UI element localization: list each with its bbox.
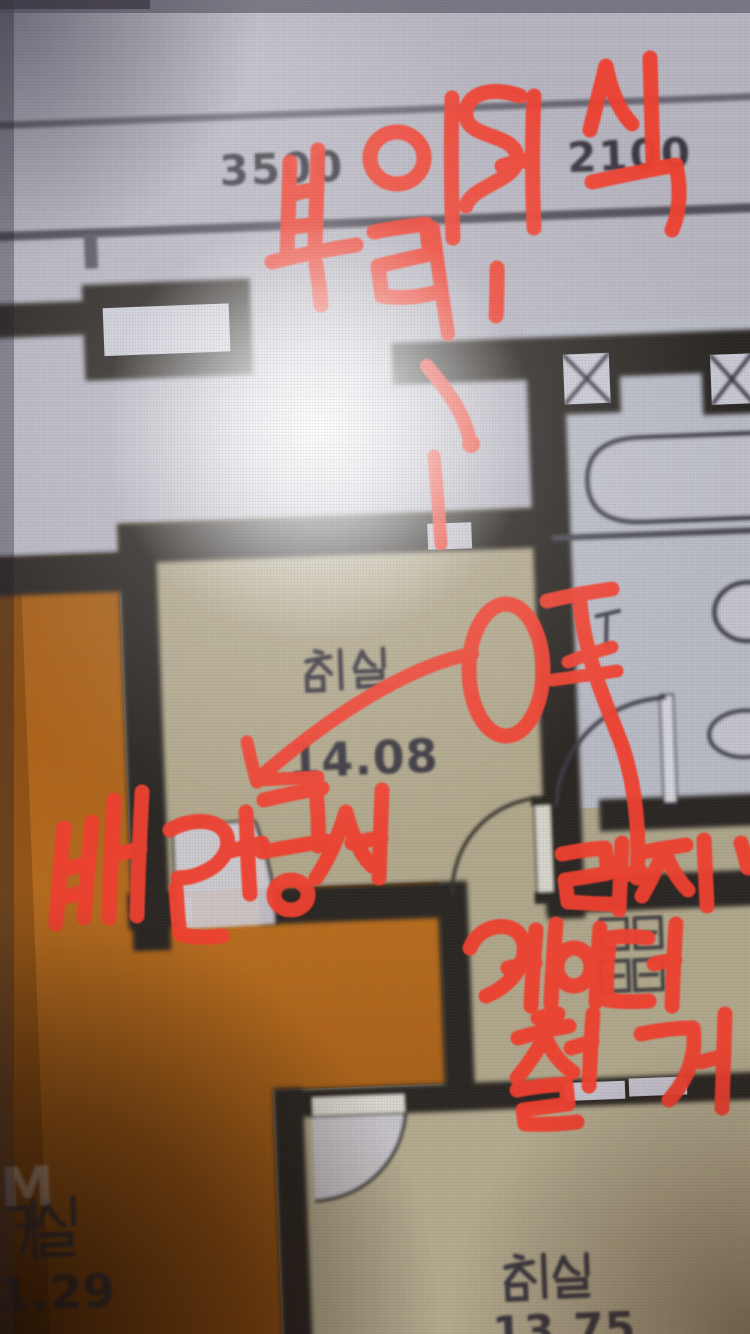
top-edge-band-left: [0, 0, 150, 9]
left-edge-shadow: [0, 0, 14, 1334]
floor-plan-photo: 3500 2100: [0, 0, 750, 1334]
floor-plan-scene: 3500 2100: [0, 0, 750, 1334]
